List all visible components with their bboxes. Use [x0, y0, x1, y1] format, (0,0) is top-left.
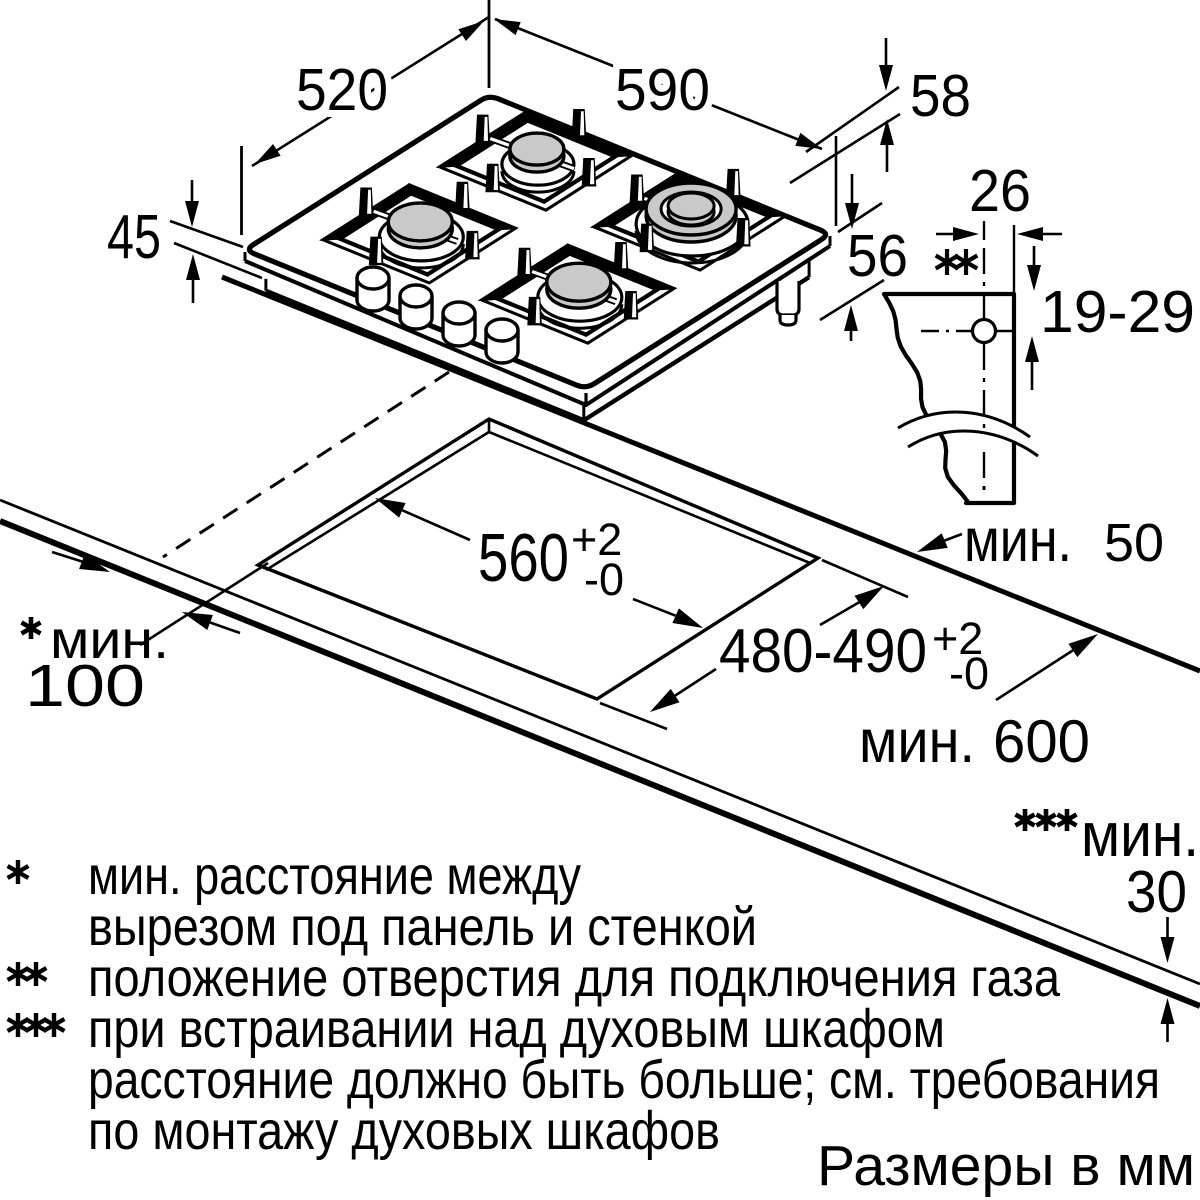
svg-text:26: 26	[969, 158, 1031, 224]
svg-text:мин.: мин.	[859, 707, 975, 775]
svg-text:по монтажу духовых шкафов: по монтажу духовых шкафов	[88, 1101, 720, 1161]
svg-text:560: 560	[478, 520, 569, 596]
svg-text:-0: -0	[949, 648, 989, 699]
svg-text:мин.: мин.	[964, 506, 1072, 574]
svg-text:100: 100	[25, 653, 145, 719]
svg-text:45: 45	[107, 203, 161, 272]
svg-text:-0: -0	[584, 554, 624, 605]
svg-text:590: 590	[615, 57, 710, 123]
svg-text:19-29: 19-29	[1040, 279, 1195, 345]
svg-text:50: 50	[1104, 513, 1164, 573]
svg-text:480-490: 480-490	[719, 617, 927, 686]
svg-text:600: 600	[993, 708, 1090, 775]
svg-text:58: 58	[910, 63, 971, 129]
svg-text:30: 30	[1126, 859, 1187, 925]
svg-text:Размеры в мм: Размеры в мм	[817, 1134, 1195, 1198]
svg-text:520: 520	[296, 57, 388, 123]
svg-text:56: 56	[847, 223, 908, 289]
